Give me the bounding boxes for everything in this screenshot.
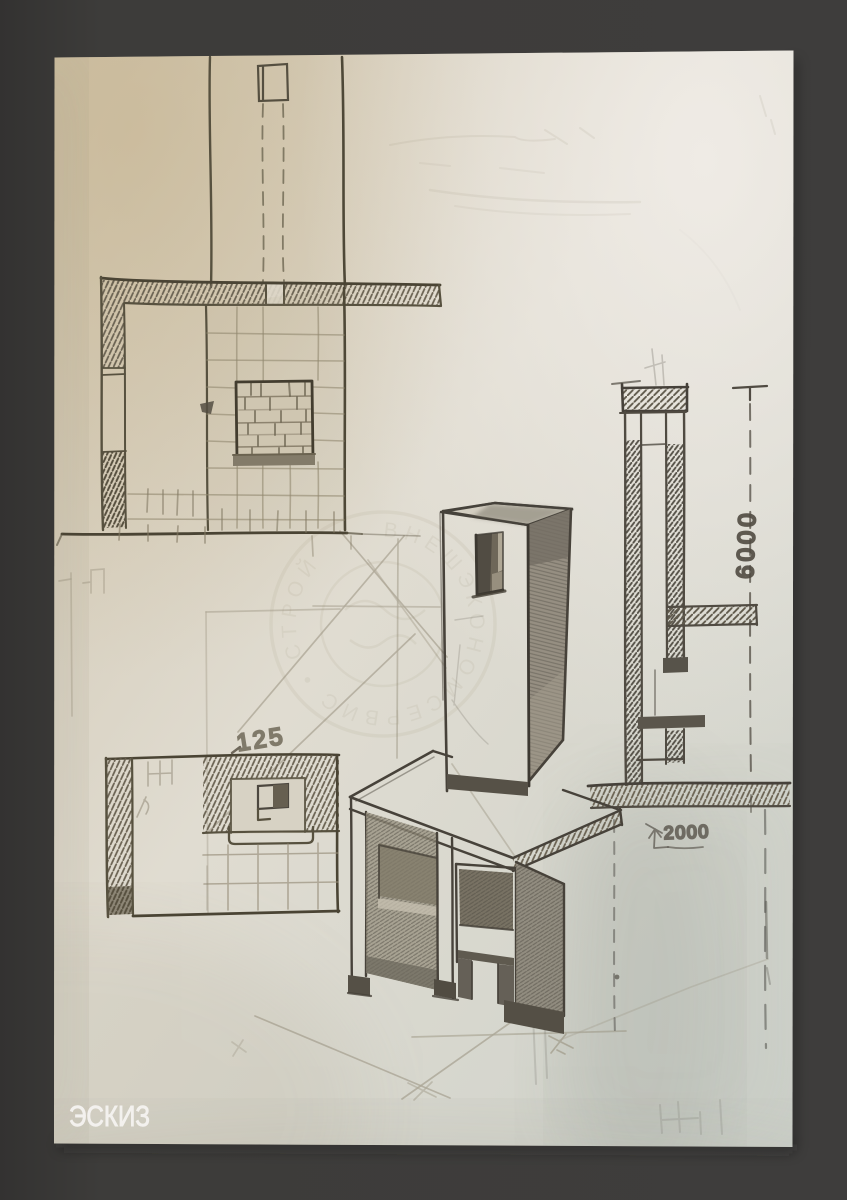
- svg-text:ЭСКИЗ: ЭСКИЗ: [69, 1101, 150, 1133]
- svg-text:2000: 2000: [663, 821, 710, 843]
- svg-text:6000: 6000: [732, 509, 761, 579]
